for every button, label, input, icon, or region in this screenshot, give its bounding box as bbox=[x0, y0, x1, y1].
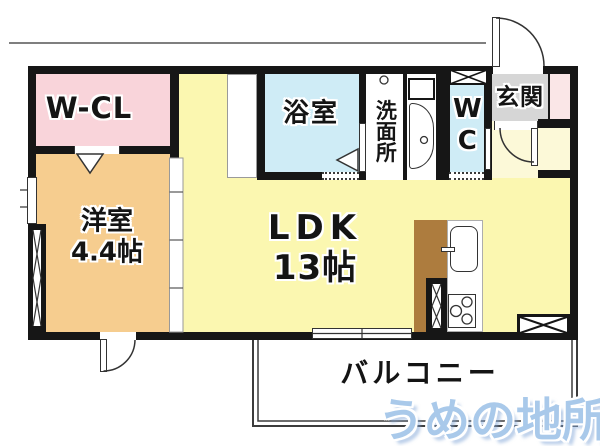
wall-bath-right-top bbox=[359, 66, 366, 123]
youshitsu-size: 4.4帖 bbox=[71, 237, 143, 268]
wall-hall-stub bbox=[538, 170, 570, 178]
room-label-ldk: LDK 13帖 bbox=[268, 208, 362, 288]
wcl-opening bbox=[74, 146, 120, 154]
genkan-shoe-closet bbox=[548, 74, 570, 121]
kitchen-counter-lower bbox=[414, 278, 426, 332]
wall-bath-right-corner bbox=[359, 172, 366, 180]
youshitsu-door-leaf bbox=[100, 339, 107, 372]
bath-threshold bbox=[322, 172, 359, 180]
window-upper-left bbox=[27, 177, 37, 224]
window-lower-left-strip bbox=[33, 230, 41, 326]
floor-plan: W-CL 洋室 4.4帖 浴室 洗面所 WC 玄関 LDK 13帖 バルコニー … bbox=[0, 0, 600, 446]
ldk-name: LDK bbox=[268, 208, 362, 248]
wall-bath-bottom bbox=[257, 172, 322, 180]
wc-threshold bbox=[449, 172, 484, 180]
washing-machine-space bbox=[449, 69, 488, 85]
entrance-door-leaf bbox=[492, 17, 500, 67]
bath-folding-door bbox=[359, 123, 366, 172]
room-label-wcl: W-CL bbox=[46, 91, 132, 125]
room-label-senmensho: 洗面所 bbox=[373, 100, 398, 163]
wall-senmensho-right bbox=[403, 74, 407, 180]
wall-right bbox=[570, 66, 578, 340]
room-label-wc: WC bbox=[452, 94, 483, 158]
youshitsu-name: 洋室 bbox=[71, 206, 143, 237]
utility-column bbox=[227, 74, 257, 178]
wall-genkan-stub bbox=[538, 119, 570, 128]
wall-basin-right bbox=[436, 74, 450, 180]
wc-door bbox=[485, 128, 491, 170]
hatched-wall-box bbox=[517, 314, 570, 336]
youshitsu-door-arc bbox=[104, 340, 136, 371]
storage-box bbox=[408, 78, 435, 100]
room-label-bath: 浴室 bbox=[283, 99, 339, 130]
room-label-genkan: 玄関 bbox=[496, 84, 544, 111]
kitchen-faucet bbox=[441, 247, 455, 252]
entrance-door-gap bbox=[493, 66, 543, 74]
balcony-sliding-window bbox=[312, 328, 412, 339]
agency-watermark: うめの地所 bbox=[378, 384, 600, 446]
kitchen-pillar-strip bbox=[432, 284, 441, 328]
room-label-youshitsu: 洋室 4.4帖 bbox=[71, 206, 143, 267]
hall-door-leaf bbox=[531, 128, 538, 166]
ldk-size: 13帖 bbox=[268, 248, 362, 288]
stove-3-burner bbox=[448, 294, 476, 328]
entrance-door-arc bbox=[496, 18, 544, 66]
wall-bath-left bbox=[257, 66, 265, 180]
